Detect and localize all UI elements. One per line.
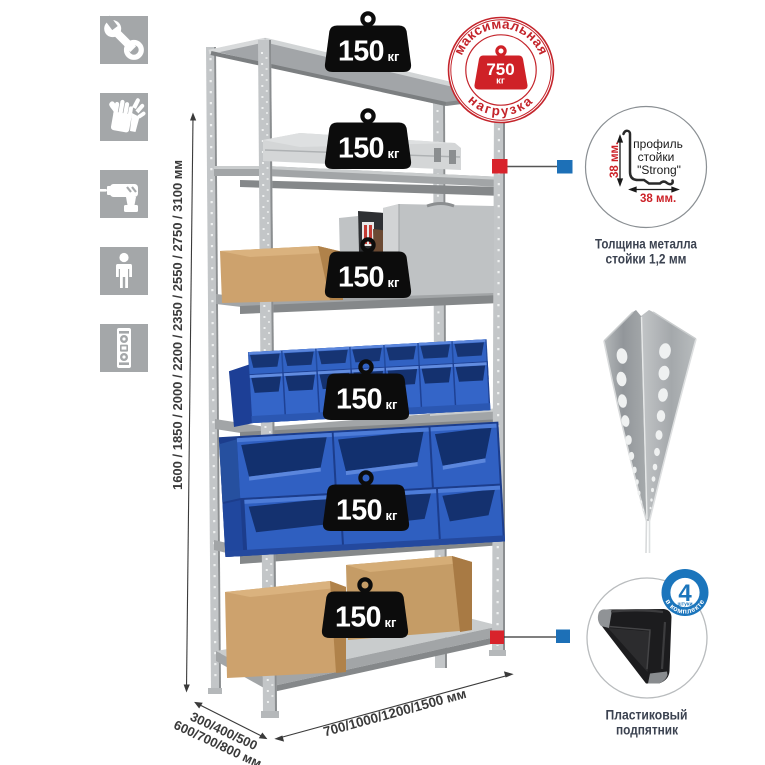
svg-text:стойки 1,2 мм: стойки 1,2 мм [606,251,687,267]
svg-text:стойки: стойки [638,150,675,164]
svg-text:подпятник: подпятник [616,722,679,738]
svg-text:1600 / 1850 / 2000 / 2200 / 23: 1600 / 1850 / 2000 / 2200 / 2350 / 2550 … [170,160,185,490]
svg-text:38 мм.: 38 мм. [609,142,621,178]
svg-text:38 мм.: 38 мм. [640,193,676,205]
svg-text:"Strong": "Strong" [637,163,681,177]
svg-text:профиль: профиль [633,137,683,151]
svg-text:Пластиковый: Пластиковый [606,707,688,723]
svg-text:Толщина металла: Толщина металла [595,236,697,252]
svg-text:кг: кг [496,76,505,87]
